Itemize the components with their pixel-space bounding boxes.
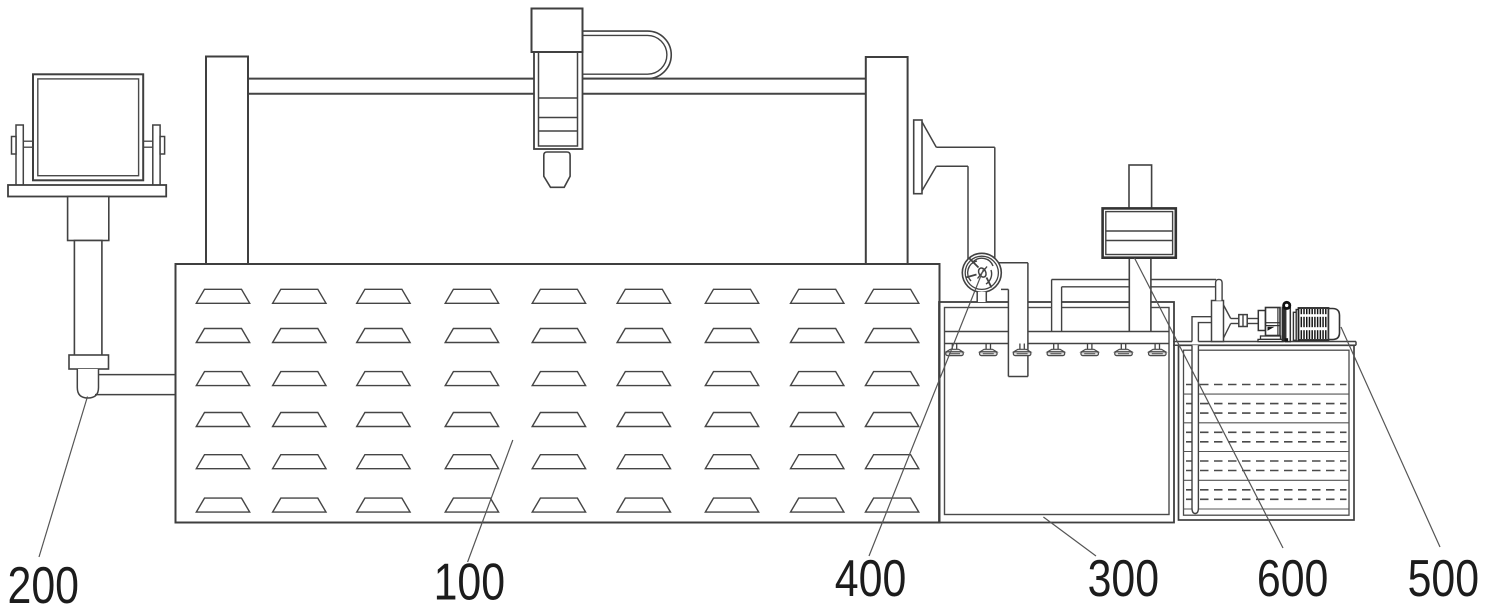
svg-text:400: 400 [835, 549, 907, 607]
svg-text:500: 500 [1408, 549, 1480, 607]
svg-text:300: 300 [1088, 549, 1160, 607]
svg-text:600: 600 [1257, 549, 1329, 607]
svg-text:100: 100 [434, 552, 506, 610]
svg-text:200: 200 [8, 556, 80, 611]
